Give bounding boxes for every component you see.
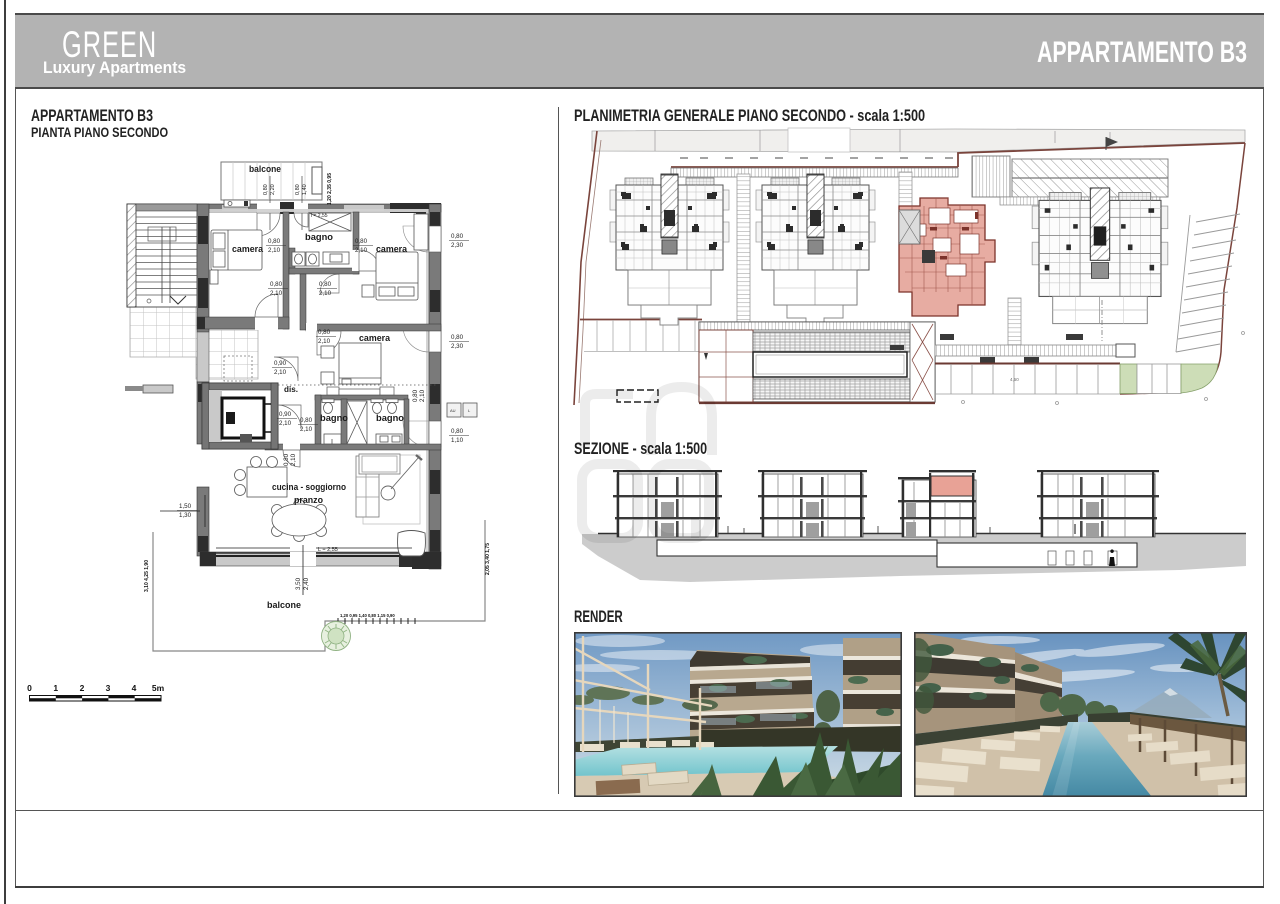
svg-text:camera: camera [376, 244, 408, 255]
svg-text:3: 3 [106, 683, 111, 693]
svg-text:0,80: 0,80 [283, 453, 290, 466]
svg-text:2,10: 2,10 [270, 290, 283, 297]
svg-text:2: 2 [80, 683, 85, 693]
svg-text:0,90: 0,90 [274, 360, 287, 367]
svg-text:2,10: 2,10 [319, 290, 332, 297]
svg-text:2,10: 2,10 [419, 389, 426, 402]
svg-text:2,10: 2,10 [355, 247, 368, 254]
svg-text:cucina - soggiorno: cucina - soggiorno [272, 482, 346, 493]
svg-text:0,80: 0,80 [268, 238, 281, 245]
svg-text:dis.: dis. [284, 384, 298, 394]
svg-text:AU: AU [450, 408, 456, 413]
svg-text:0,80: 0,80 [412, 389, 419, 402]
svg-text:0,80: 0,80 [355, 238, 368, 245]
svg-text:0,80: 0,80 [451, 233, 464, 240]
svg-text:1,20 2,35 0,95: 1,20 2,35 0,95 [327, 173, 333, 205]
svg-text:1,30: 1,30 [179, 512, 192, 519]
svg-text:bagno: bagno [320, 413, 348, 424]
svg-text:0,90: 0,90 [279, 411, 292, 418]
svg-text:2,10: 2,10 [268, 247, 281, 254]
svg-text:0: 0 [27, 683, 32, 693]
svg-text:camera: camera [359, 333, 391, 344]
svg-text:0,80: 0,80 [319, 281, 332, 288]
svg-text:pranzo: pranzo [294, 495, 323, 506]
svg-text:0,80: 0,80 [451, 334, 464, 341]
svg-text:2,10: 2,10 [279, 420, 292, 427]
svg-text:0,80: 0,80 [295, 184, 301, 195]
svg-text:bagno: bagno [376, 413, 404, 424]
svg-text:l = 2,55: l = 2,55 [311, 213, 328, 219]
svg-text:0,80: 0,80 [263, 184, 269, 195]
svg-text:balcone: balcone [267, 600, 301, 611]
svg-text:3,50: 3,50 [295, 577, 302, 590]
svg-text:1,50: 1,50 [179, 503, 192, 510]
svg-text:2,10: 2,10 [274, 369, 287, 376]
svg-text:balcone: balcone [249, 164, 281, 174]
svg-text:2,30: 2,30 [451, 242, 464, 249]
svg-text:1: 1 [53, 683, 58, 693]
svg-text:1,20 0,95 1,40 0,80 1,15: 1,20 0,95 1,40 0,80 1,15 0,90 [340, 613, 395, 618]
svg-text:2,40: 2,40 [303, 577, 310, 590]
svg-text:2,10: 2,10 [300, 426, 313, 433]
svg-text:0,80: 0,80 [318, 329, 331, 336]
svg-text:2,05 3,40 1,75: 2,05 3,40 1,75 [485, 543, 491, 575]
svg-text:2,10: 2,10 [318, 338, 331, 345]
svg-text:2,30: 2,30 [451, 343, 464, 350]
svg-text:2,20: 2,20 [270, 184, 276, 195]
svg-text:2,10: 2,10 [290, 453, 297, 466]
svg-text:1,10: 1,10 [451, 437, 464, 444]
svg-text:1,40: 1,40 [302, 184, 308, 195]
svg-text:camera: camera [232, 244, 264, 255]
svg-text:0,80: 0,80 [300, 417, 313, 424]
svg-text:4,50: 4,50 [1010, 377, 1019, 382]
svg-text:5m: 5m [152, 683, 165, 693]
svg-text:0,80: 0,80 [270, 281, 283, 288]
svg-text:0,80: 0,80 [451, 428, 464, 435]
svg-text:4: 4 [132, 683, 137, 693]
svg-text:3,10 4,25 1,90: 3,10 4,25 1,90 [144, 560, 150, 592]
svg-text:bagno: bagno [305, 232, 333, 243]
